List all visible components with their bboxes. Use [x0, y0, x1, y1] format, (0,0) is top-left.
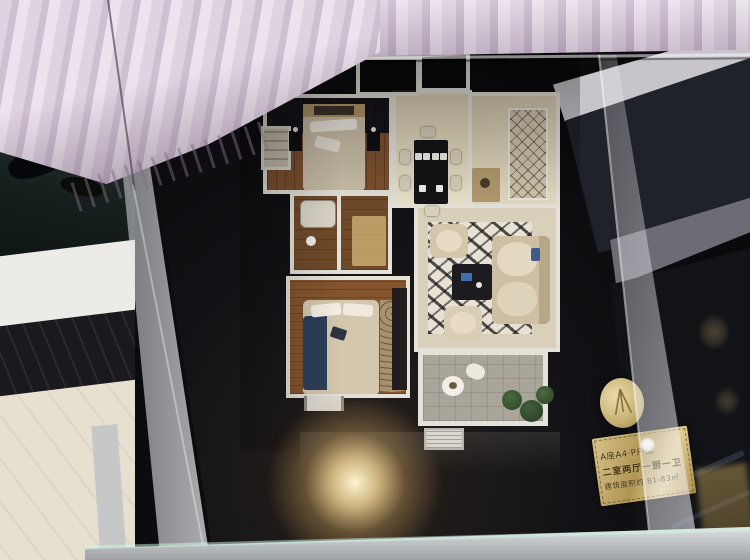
nightstand [289, 131, 302, 151]
plate [419, 185, 426, 192]
dining-chair [451, 176, 461, 190]
lamp [371, 127, 376, 132]
sofa-back [539, 236, 550, 324]
plate [423, 153, 430, 160]
wardrobe [392, 288, 407, 390]
dining-chair [400, 176, 410, 190]
showroom-photo: A座A4·P户型 二室两厅一厨一卫 建筑面积约 81-83㎡ [0, 0, 750, 560]
pillow [310, 302, 341, 317]
table-decor [461, 273, 472, 281]
plate [432, 153, 439, 160]
plate [415, 153, 422, 160]
disc-reflection [700, 316, 728, 348]
blanket [303, 316, 327, 390]
pillow [310, 118, 358, 132]
light-glare [255, 395, 455, 560]
table-decor [476, 282, 482, 288]
nightstand [367, 131, 380, 151]
dining-chair [425, 206, 439, 216]
dining-table [414, 140, 448, 204]
disc-reflection [716, 388, 738, 414]
armchair [444, 306, 482, 340]
plate [440, 153, 447, 160]
bed-small [303, 104, 365, 190]
potted-plant [502, 390, 522, 410]
accent-pillow [531, 248, 540, 261]
partition-wall [337, 196, 341, 270]
bed-master [303, 300, 379, 394]
plate [436, 185, 443, 192]
sofa [492, 236, 550, 324]
dining-chair [400, 150, 410, 164]
lamp [293, 127, 298, 132]
bathtub [300, 200, 336, 228]
throw-pillow [314, 135, 341, 153]
headboard [303, 104, 365, 117]
side-table [472, 168, 500, 202]
potted-plant [536, 386, 554, 404]
lattice-shelf [508, 108, 548, 200]
throw-pillow [330, 326, 348, 341]
armchair [430, 224, 468, 258]
cushion [497, 282, 537, 316]
pillow [343, 303, 374, 317]
dining-chair [451, 150, 461, 164]
toilet [306, 236, 316, 246]
potted-plant [520, 400, 543, 422]
coffee-table [452, 264, 492, 300]
balcony-table [442, 376, 464, 396]
dining-chair [421, 127, 435, 137]
bathroom-cabinet [352, 216, 386, 266]
